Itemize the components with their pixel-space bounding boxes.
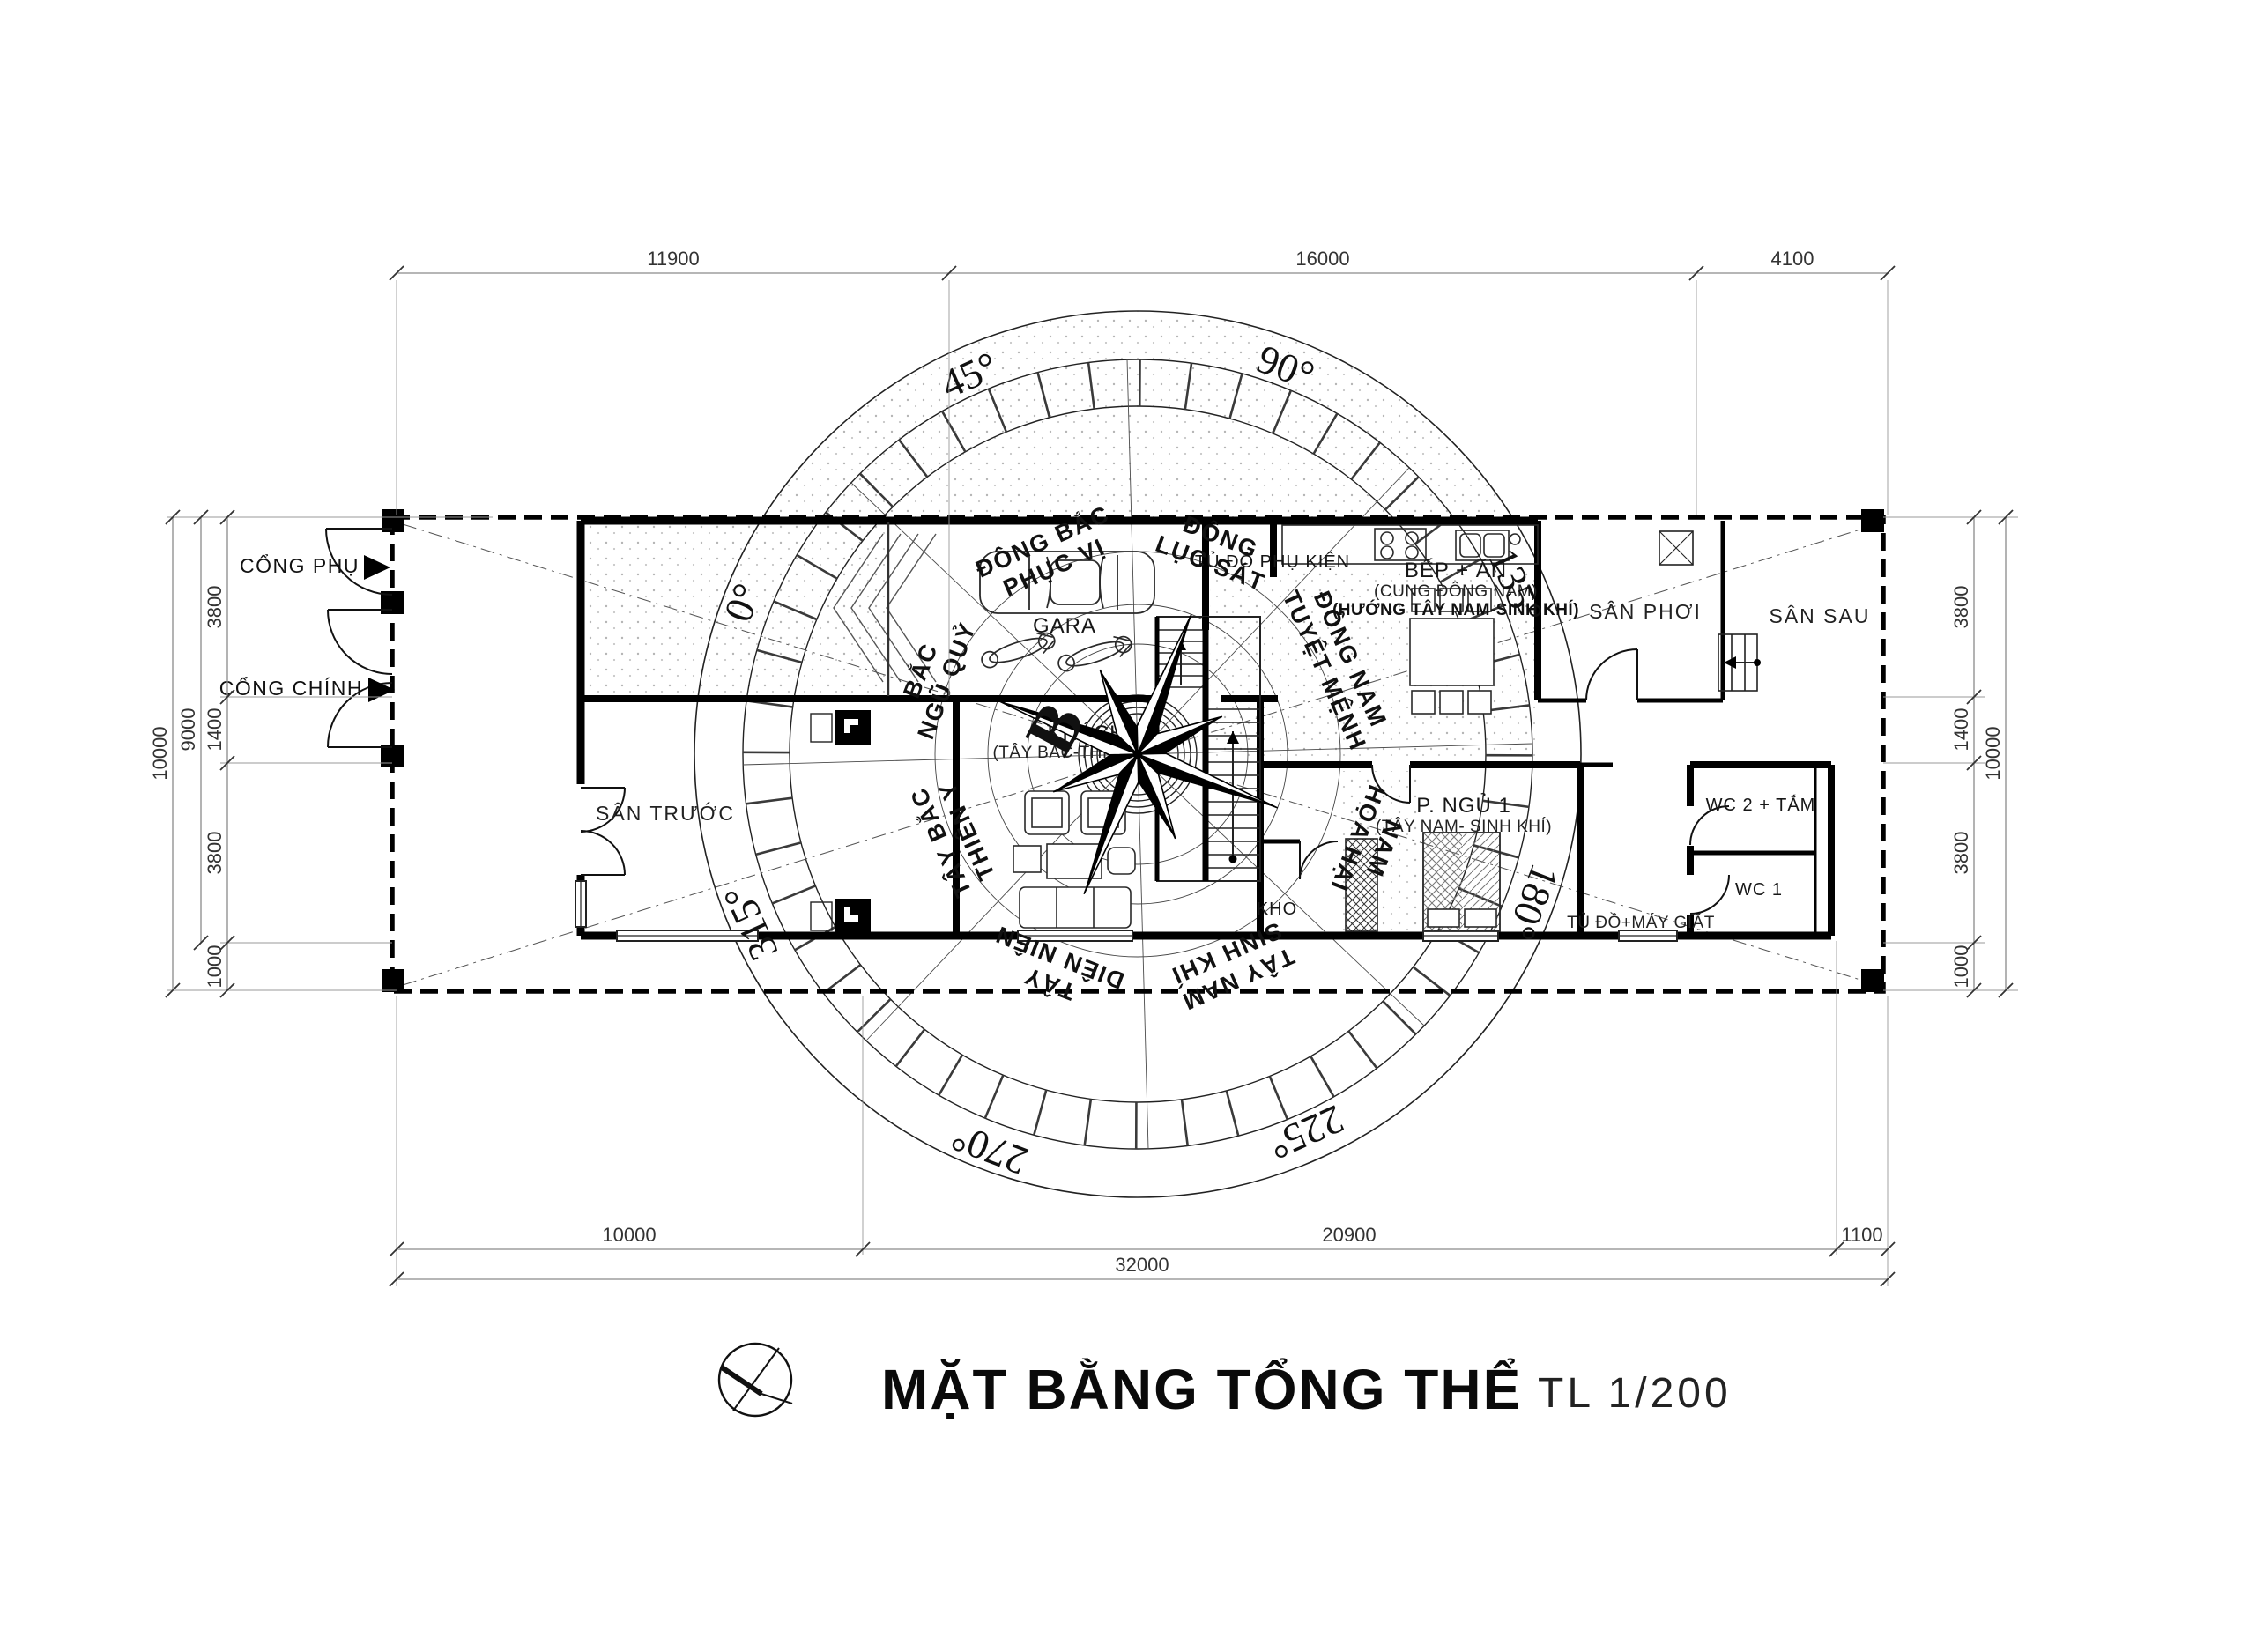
boundary-post	[1861, 969, 1884, 992]
degree-225: 225°	[1262, 1096, 1351, 1168]
bed	[1423, 833, 1500, 931]
dim-top-1: 11900	[647, 248, 700, 270]
garage-label: GARA	[1033, 614, 1096, 638]
dim-left-3: 3800	[204, 832, 226, 875]
dim-bottom-2: 20900	[1322, 1224, 1376, 1246]
side-gate-arrow-icon	[364, 555, 390, 580]
sheet-scale: TL 1/200	[1538, 1370, 1732, 1417]
drying-yard-label: SÂN PHƠI	[1589, 600, 1702, 623]
dim-right-10000: 10000	[1982, 726, 2004, 780]
site-plan-drawing: GARA KHÁCH (TÂY BẮC-THIÊN Y) BẾP + ĂN (C…	[0, 0, 2256, 1652]
title-block: MẶT BẰNG TỔNG THỂ TL 1/200	[719, 1344, 1732, 1421]
dim-left-9000: 9000	[177, 708, 199, 752]
dim-left-2: 1400	[204, 708, 226, 752]
degree-315: 315°	[714, 878, 786, 967]
sheet-title: MẶT BẰNG TỔNG THỂ	[881, 1357, 1522, 1421]
laundry-label: TỦ ĐỒ+MÁY GIẶT	[1567, 913, 1715, 932]
dim-right-2: 1400	[1950, 708, 1972, 752]
column-markers	[811, 710, 871, 934]
dim-left-1: 3800	[204, 586, 226, 629]
dim-right-3: 3800	[1950, 832, 1972, 875]
dim-right-4: 1000	[1950, 945, 1972, 989]
floor-plan-sheet: GARA KHÁCH (TÂY BẮC-THIÊN Y) BẾP + ĂN (C…	[0, 0, 2256, 1652]
dim-top-2: 16000	[1295, 248, 1349, 270]
side-gate-label: CỔNG PHỤ	[240, 553, 360, 577]
bedroom1-label: P. NGỦ 1	[1416, 792, 1511, 818]
dim-left-10000: 10000	[149, 726, 171, 780]
dim-left-4: 1000	[204, 945, 226, 989]
gate-labels: CỔNG PHỤ CỔNG CHÍNH	[219, 553, 395, 702]
dim-bottom-3: 1100	[1841, 1224, 1882, 1246]
sector-tay-nam: TÂY NAMSINH KHÍ	[1166, 917, 1298, 1017]
degree-270: 270°	[946, 1115, 1034, 1184]
main-gate-label: CỔNG CHÍNH	[219, 676, 363, 700]
dim-bottom-total: 32000	[1115, 1254, 1169, 1276]
boundary-post	[382, 969, 404, 992]
dim-bottom-1: 10000	[602, 1224, 656, 1246]
wc1-label: WC 1	[1735, 880, 1783, 900]
storage-label: KHO	[1257, 900, 1297, 919]
back-yard-label: SÂN SAU	[1770, 604, 1871, 627]
dim-top-3: 4100	[1771, 248, 1814, 270]
dim-right-1: 3800	[1950, 586, 1972, 629]
title-logo-icon	[719, 1344, 792, 1416]
front-yard-label: SÂN TRƯỚC	[596, 802, 735, 825]
boundary-post	[1861, 509, 1884, 532]
wc2-label: WC 2 + TẮM	[1706, 794, 1816, 815]
